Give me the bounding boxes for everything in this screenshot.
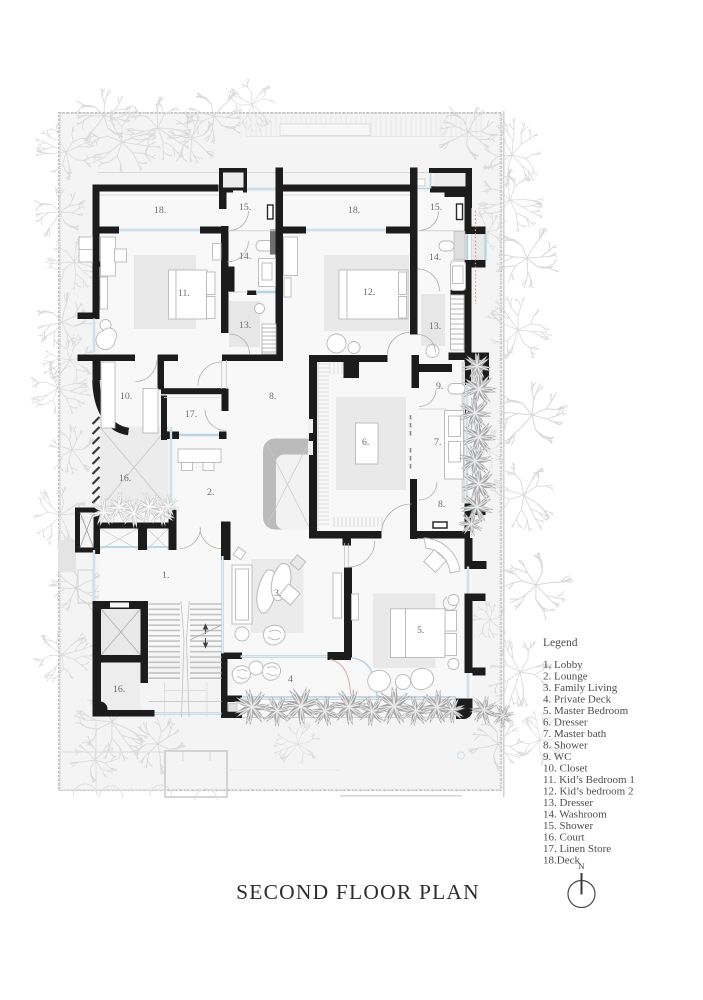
svg-text:10. Closet: 10. Closet [543,763,588,775]
svg-text:11.: 11. [178,288,190,299]
svg-text:N: N [578,861,584,871]
svg-text:12.: 12. [363,287,375,298]
svg-text:15.: 15. [430,202,442,213]
svg-text:4: 4 [288,674,293,685]
svg-text:14.: 14. [429,252,441,263]
svg-text:5. Master Bedroom: 5. Master Bedroom [543,705,629,717]
svg-text:18.: 18. [348,205,360,216]
svg-text:18.Deck: 18.Deck [543,855,580,867]
svg-text:5.: 5. [417,625,424,636]
svg-text:15. Shower: 15. Shower [543,820,593,832]
svg-text:14.: 14. [239,251,251,262]
svg-text:SECOND FLOOR PLAN: SECOND FLOOR PLAN [236,880,480,904]
svg-text:9. WC: 9. WC [543,751,572,763]
svg-text:12. Kid’s bedroom 2: 12. Kid’s bedroom 2 [543,786,633,798]
svg-text:4. Private Deck: 4. Private Deck [543,694,612,706]
svg-text:8.: 8. [438,499,445,510]
svg-text:8. Shower: 8. Shower [543,740,588,752]
svg-text:16. Court: 16. Court [543,832,585,844]
svg-text:9.: 9. [436,381,443,392]
svg-text:17. Linen Store: 17. Linen Store [543,843,611,855]
svg-text:Legend: Legend [543,637,578,649]
svg-text:7.: 7. [434,437,441,448]
svg-text:6. Dresser: 6. Dresser [543,717,588,729]
svg-text:13.: 13. [429,321,441,332]
svg-text:2. Lounge: 2. Lounge [543,671,588,683]
svg-text:6.: 6. [362,437,369,448]
svg-text:13. Dresser: 13. Dresser [543,797,593,809]
svg-text:1.: 1. [162,570,169,581]
svg-text:13.: 13. [239,320,251,331]
svg-text:16.: 16. [113,684,125,695]
svg-text:14. Washroom: 14. Washroom [543,809,607,821]
svg-text:16.: 16. [119,473,131,484]
svg-text:3. Family Living: 3. Family Living [543,682,618,694]
svg-text:7. Master bath: 7. Master bath [543,728,607,740]
svg-text:3.: 3. [274,588,281,599]
svg-text:2.: 2. [207,487,214,498]
svg-text:1. Lobby: 1. Lobby [543,659,583,671]
svg-text:11. Kid’s Bedroom 1: 11. Kid’s Bedroom 1 [543,774,635,786]
svg-text:15.: 15. [239,202,251,213]
svg-text:17.: 17. [185,409,197,420]
svg-text:10.: 10. [120,391,132,402]
svg-text:8.: 8. [269,391,276,402]
svg-text:18.: 18. [154,205,166,216]
